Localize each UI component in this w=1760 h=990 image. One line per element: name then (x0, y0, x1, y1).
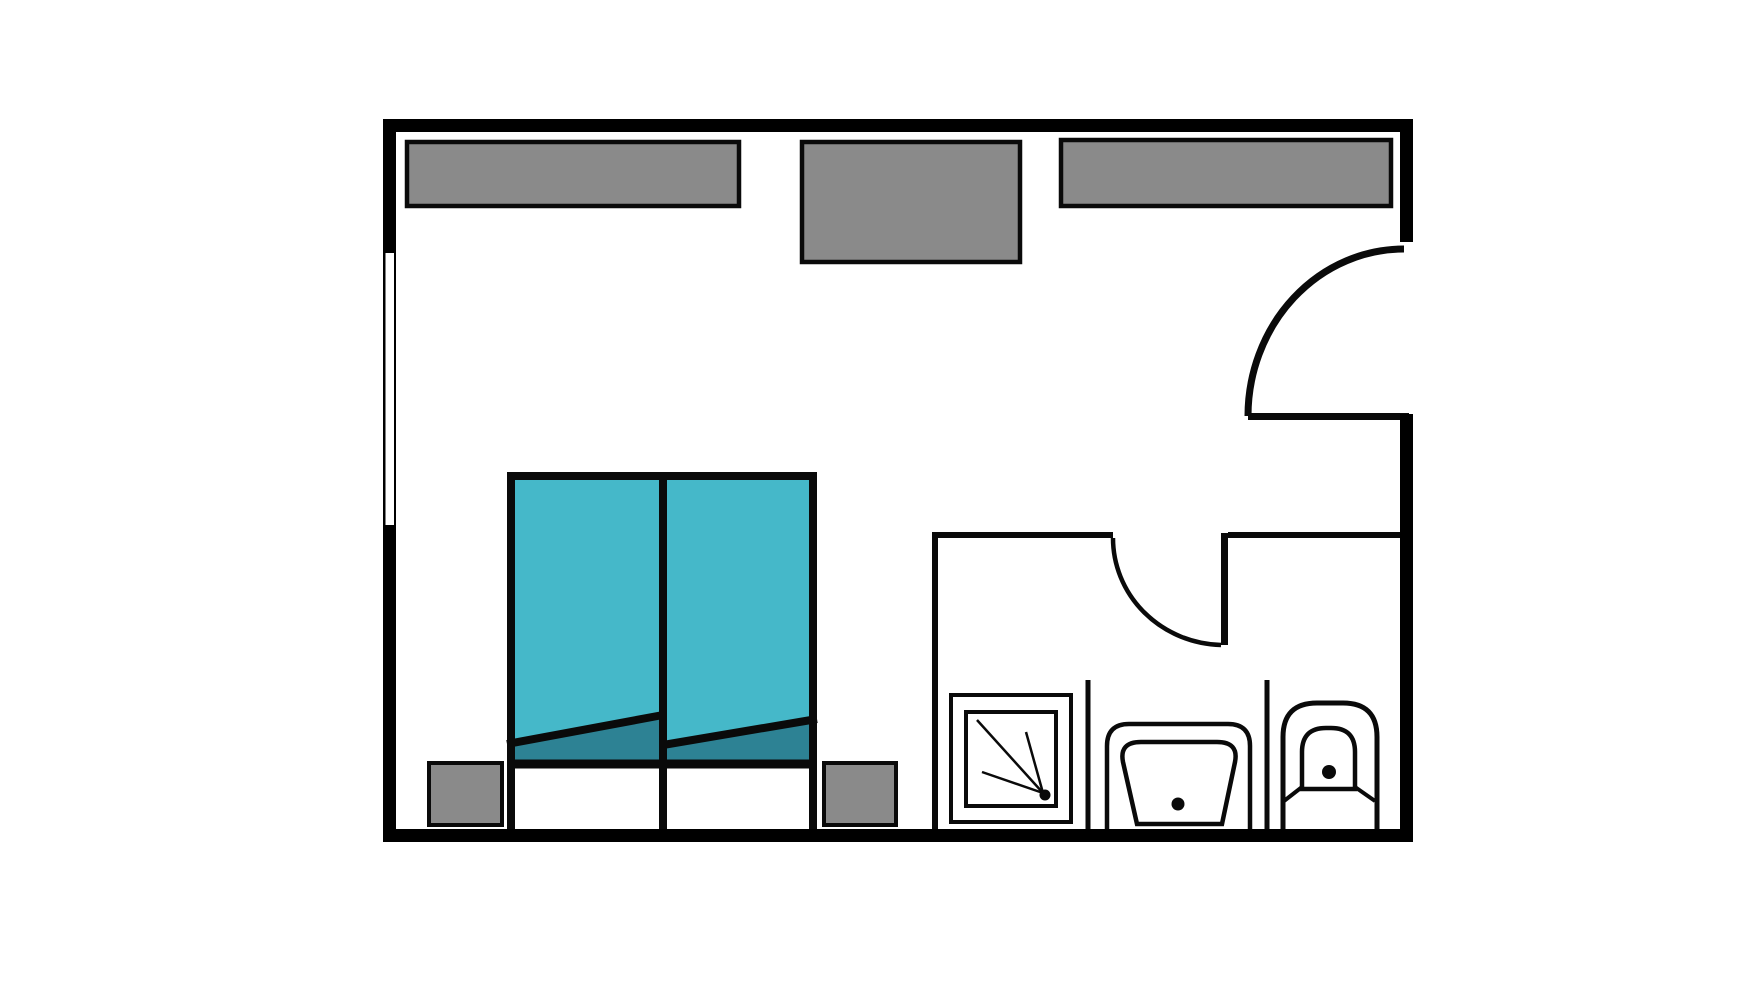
nightstand-right (824, 763, 896, 825)
entry-door-swing-arc (1248, 249, 1404, 416)
shower (951, 695, 1071, 822)
toilet-bowl (1122, 742, 1235, 824)
bathroom-door-swing-arc (1113, 538, 1221, 645)
bed-right-spread (667, 480, 809, 762)
bed-right (663, 480, 817, 762)
shower-drain-dot (1040, 790, 1051, 801)
wall-top (383, 119, 1413, 132)
entry-door (1248, 249, 1409, 417)
cabinet-top-left (407, 142, 739, 206)
bathroom (932, 532, 1402, 833)
cabinet-top-middle (802, 142, 1020, 262)
wall-bottom (383, 829, 1413, 842)
bidet-drain-dot (1322, 765, 1336, 779)
window-glazing (386, 253, 395, 525)
nightstand-left (429, 763, 502, 825)
floor-plan (0, 0, 1760, 990)
bed-left (507, 480, 663, 762)
toilet-flush-dot (1172, 798, 1185, 811)
wall-right-below-door (1400, 414, 1413, 842)
wall-right-above-door (1400, 119, 1413, 242)
twin-beds (507, 472, 817, 842)
floor-plan-page (0, 0, 1760, 990)
bidet (1283, 703, 1377, 833)
bidet-bowl (1302, 728, 1355, 789)
storage-cabinets (407, 140, 1391, 262)
toilet (1107, 724, 1250, 833)
cabinet-top-right (1061, 140, 1391, 206)
